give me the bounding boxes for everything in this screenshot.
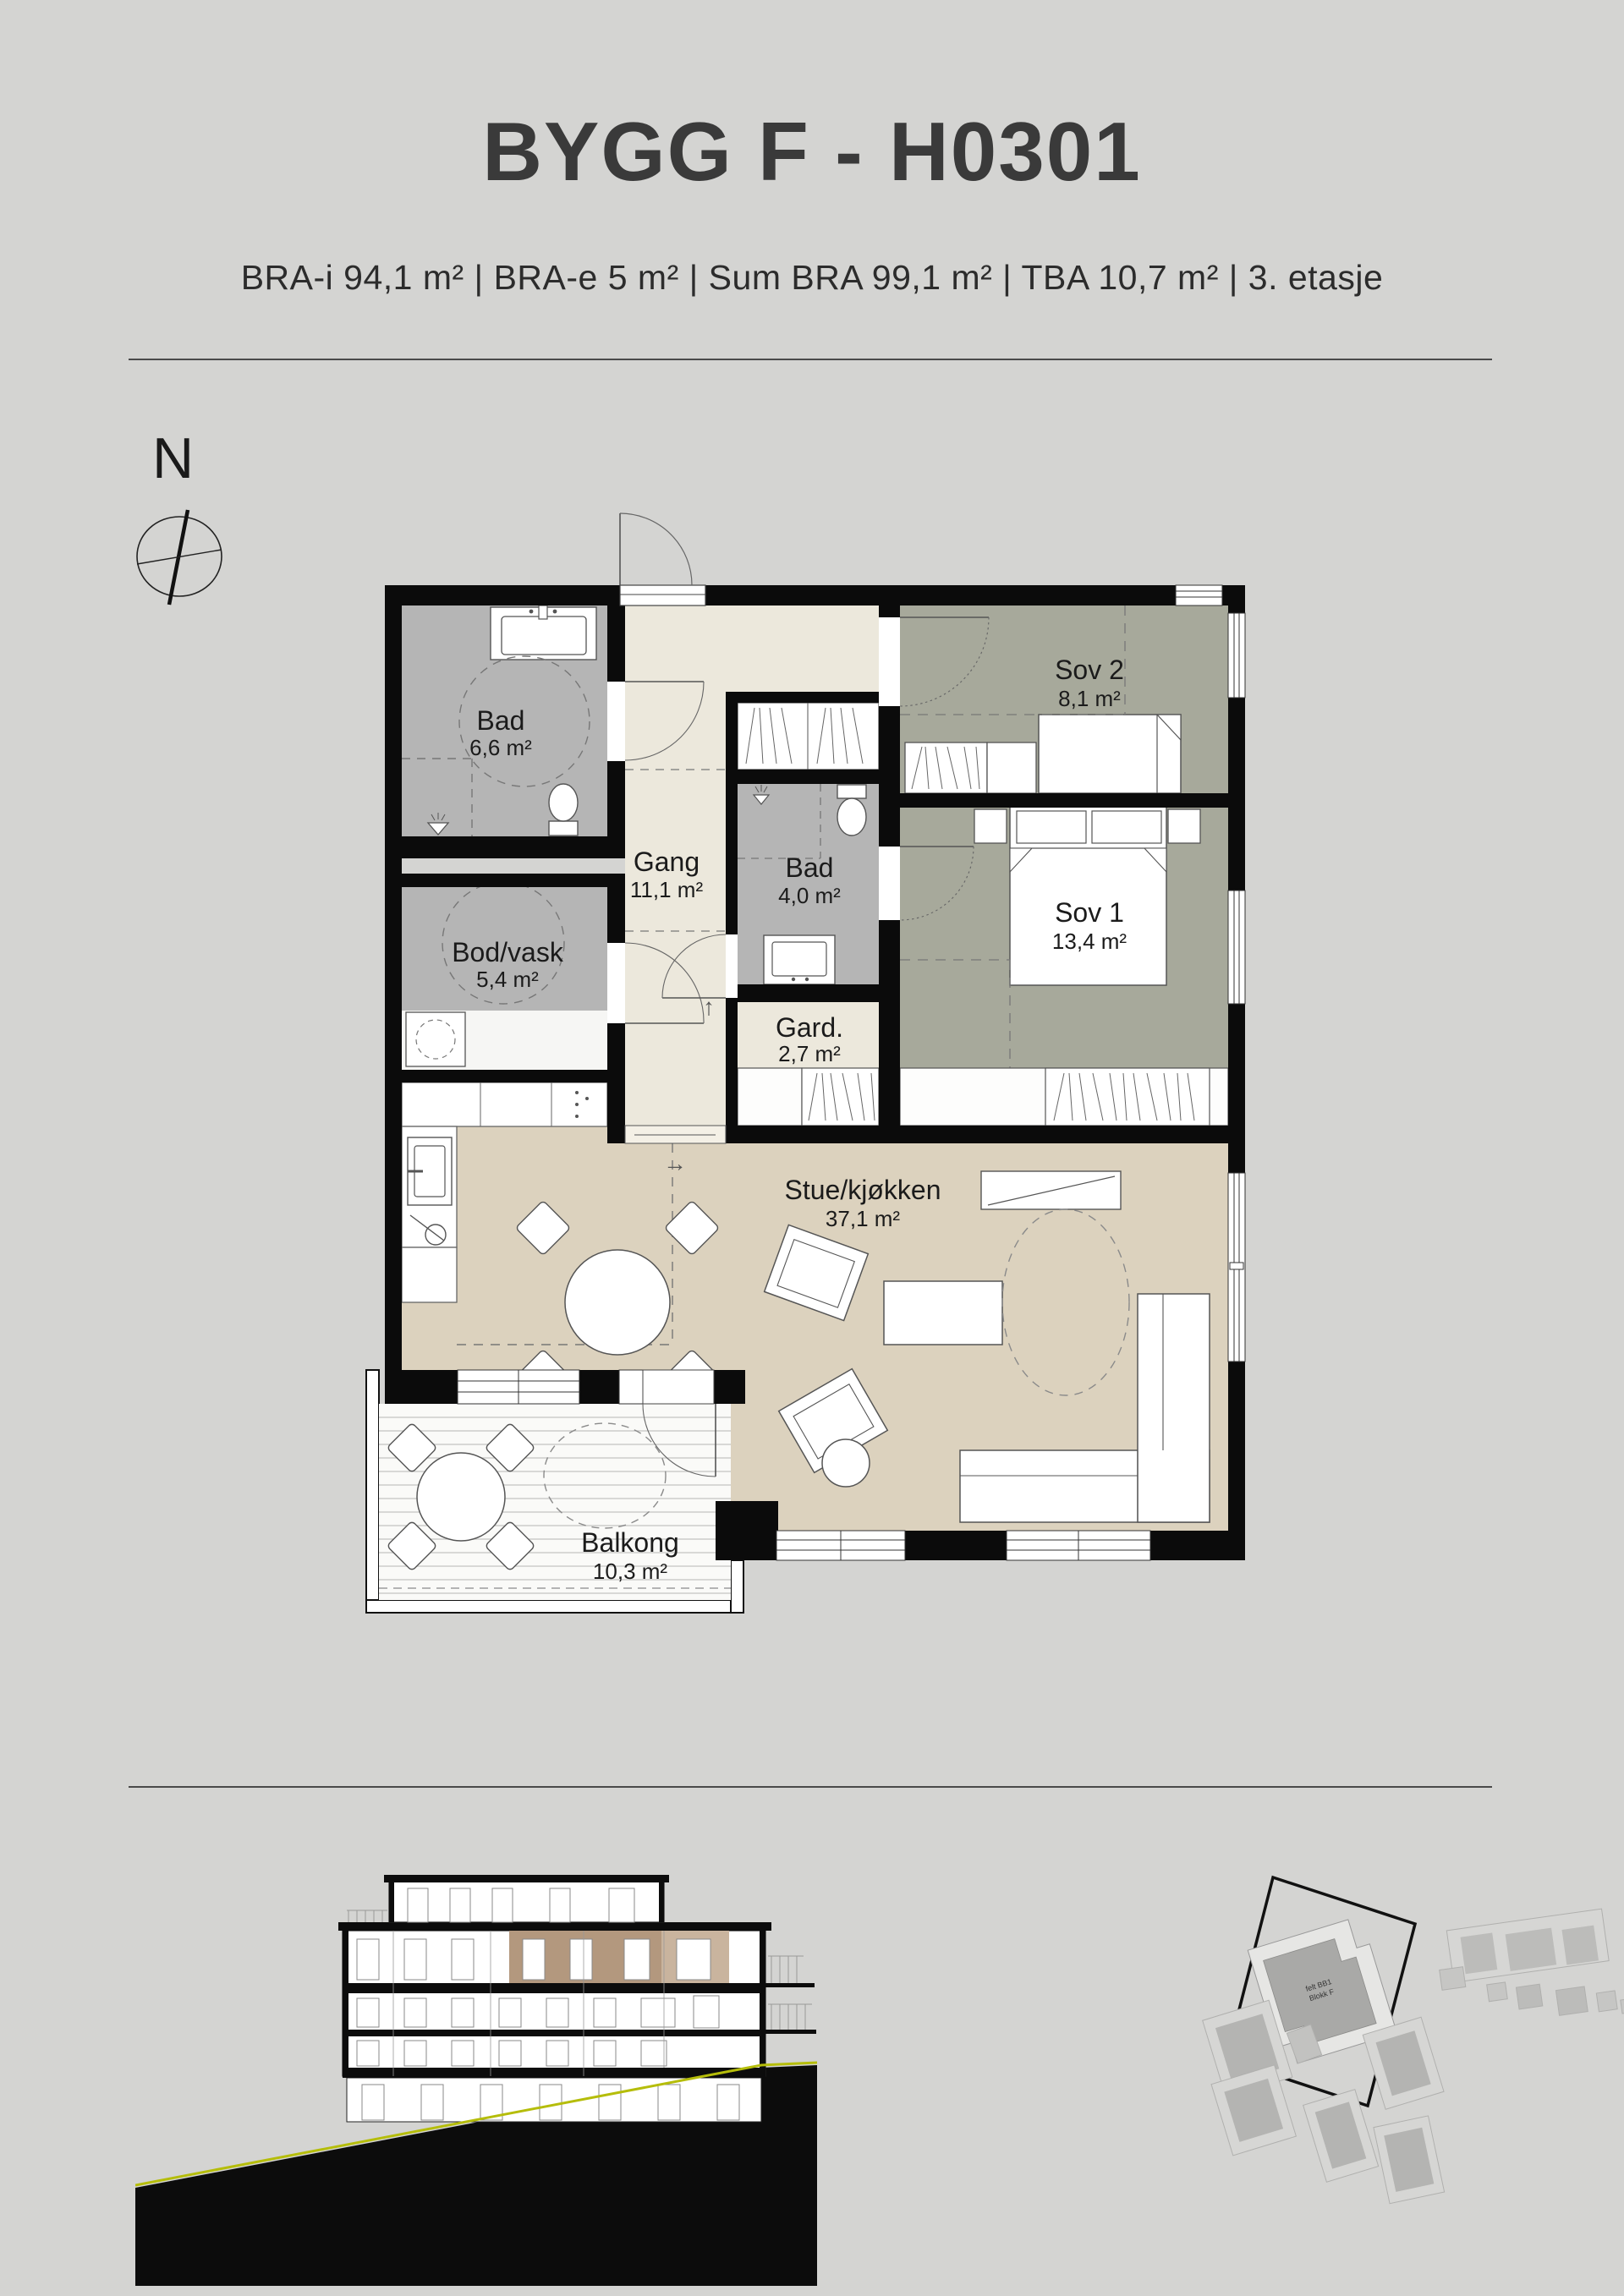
room-label-sov1: Sov 1 [1055,897,1124,928]
room-label-gard: Gard. [776,1012,843,1043]
room-area-bad1: 6,6 m² [469,735,532,760]
room-area-sov2: 8,1 m² [1058,686,1121,711]
room-area-balkong: 10,3 m² [593,1559,667,1584]
room-area-stue: 37,1 m² [826,1206,900,1231]
site-plan: felt BB1 Blokk F [1146,1852,1624,2292]
divider-bottom [129,1786,1492,1788]
window-stue-right [1228,1173,1245,1362]
site-block-row [1434,1906,1624,2038]
side-table [822,1439,870,1487]
sov1-wardrobe [900,1068,1228,1126]
sov2-dresser [987,743,1036,793]
gang-arrow-up: ↑ [703,994,715,1020]
sov1-nightstand-left [974,809,1007,843]
compass-icon [137,510,222,605]
floor-stue-left [402,1302,457,1370]
site-block-a [1363,2017,1444,2109]
window-top-sov2 [1176,585,1222,606]
sov1-bed [1010,807,1166,985]
section-basement [347,2078,761,2122]
dining-table [565,1250,670,1355]
room-label-sov2: Sov 2 [1055,655,1124,685]
bad2-basin [772,942,826,976]
room-area-bad2: 4,0 m² [778,883,841,908]
room-label-gang: Gang [634,847,700,877]
building-section [135,1856,820,2289]
coffee-table [884,1281,1002,1345]
balcony-railing-bottom [366,1600,743,1613]
room-label-bodvask: Bod/vask [452,937,564,967]
floor-gang-top [625,606,879,692]
north-compass: N [118,419,262,622]
balcony-railing-right [731,1560,743,1613]
room-area-gang: 11,1 m² [630,877,704,902]
room-label-balkong: Balkong [581,1527,679,1558]
page-subtitle: BRA-i 94,1 m² | BRA-e 5 m² | Sum BRA 99,… [0,258,1624,298]
gard-wardrobe [738,1068,879,1126]
page-title: BYGG F - H0301 [0,110,1624,193]
site-block-e [1374,2116,1445,2204]
section-building [338,1922,771,2078]
room-label-bad1: Bad [477,705,525,736]
window-sov2-right [1228,613,1245,698]
north-label: N [152,426,194,490]
bad1-basin [502,616,586,655]
room-area-sov1: 13,4 m² [1052,929,1127,954]
entrance-door [620,513,705,606]
room-label-bad2: Bad [786,852,834,883]
sov2-wardrobe [905,743,987,793]
gang-stue-opening [625,1126,726,1143]
sov1-nightstand-right [1168,809,1200,843]
window-stue-bottom-2 [1007,1531,1150,1560]
divider-top [129,359,1492,360]
room-label-stue: Stue/kjøkken [785,1175,941,1205]
gang-closet [738,703,879,770]
bad1-toilet-icon [549,784,578,836]
stue-arrow-right: → [663,1150,687,1176]
balcony-table [417,1453,505,1541]
section-top-floor [384,1875,669,1922]
kitchen-cabinet [402,1247,457,1302]
window-stue-bottom-1 [776,1531,905,1560]
sov2-bed [1039,715,1181,793]
floor-plan: ↑ → Bad 6,6 m² Bod/vask 5,4 m² Gang 11,1… [364,499,1252,1653]
bad2-toilet-icon [837,785,866,836]
balcony-railing-left [366,1370,379,1613]
room-area-bodvask: 5,4 m² [476,967,539,992]
tv-bench [981,1171,1121,1209]
bad1-faucet-icon [539,606,547,619]
balcony [366,1370,743,1613]
floor-gang-corridor [625,692,726,1126]
room-area-gard: 2,7 m² [778,1041,841,1066]
window-sov1-right [1228,890,1245,1004]
